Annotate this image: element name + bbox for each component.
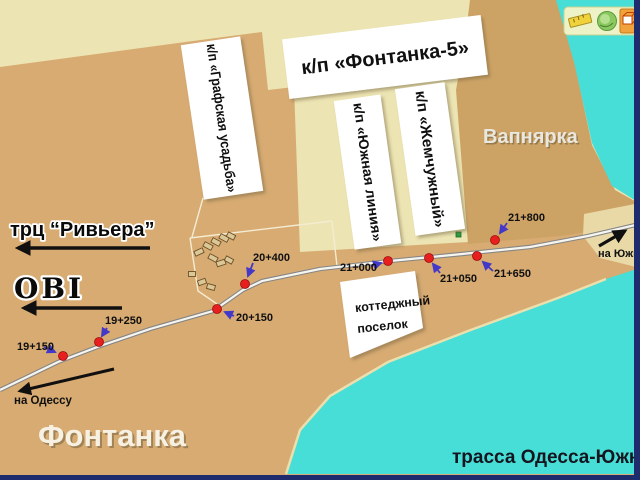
frame-right-edge [634,0,640,480]
highway-label: трасса Одесса-Южный [452,447,640,468]
fontanka-label: Фонтанка [38,418,187,453]
road-marker-dot [425,254,434,263]
road-marker-label: 20+400 [253,252,290,264]
road-marker-dot [384,257,393,266]
globe-icon[interactable] [598,12,617,31]
building-footprint [189,272,196,277]
cube-icon[interactable] [620,9,635,33]
map-toolbar [564,7,637,35]
road-marker-dot [95,338,104,347]
green-roadside-marker [456,232,461,237]
riviera-label: трц “Ривьера” [10,219,155,241]
map-canvas: к/п «Фонтанка-5» к/п «Графская усадьба» … [0,0,640,480]
road-marker-label: 21+050 [440,273,477,285]
map-viewer: к/п «Фонтанка-5» к/п «Графская усадьба» … [0,0,640,480]
to-odessa-label: на Одессу [14,395,73,407]
road-marker-label: 19+250 [105,315,142,327]
road-marker-label: 21+000 [340,262,377,274]
road-marker-dot [213,305,222,314]
road-marker-dot [473,252,482,261]
frame-bottom-edge [0,475,640,480]
road-marker-dot [59,352,68,361]
vapnyarka-label: Вапнярка [483,126,579,148]
road-marker-label: 21+800 [508,212,545,224]
road-marker-dot [241,280,250,289]
road-marker-dot [491,236,500,245]
to-yuzhny-label: на Южный [598,248,640,260]
road-marker-label: 19+150 [17,341,54,353]
road-marker-label: 20+150 [236,312,273,324]
obi-label: OBI [14,272,84,305]
road-marker-label: 21+650 [494,268,531,280]
